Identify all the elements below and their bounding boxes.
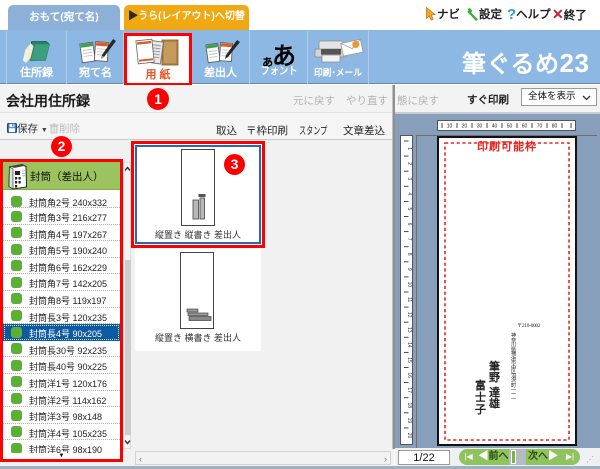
- svg-text:10: 10: [406, 282, 412, 288]
- svg-text:70: 70: [537, 124, 543, 130]
- svg-text:3: 3: [406, 177, 412, 180]
- svg-text:18: 18: [406, 403, 412, 409]
- svg-text:5: 5: [406, 208, 412, 211]
- svg-text:6: 6: [406, 223, 412, 226]
- svg-text:15: 15: [406, 357, 412, 363]
- svg-text:1: 1: [406, 147, 412, 150]
- svg-text:17: 17: [406, 387, 412, 393]
- svg-text:19: 19: [406, 418, 412, 424]
- svg-text:8: 8: [406, 253, 412, 256]
- svg-text:60: 60: [522, 124, 528, 130]
- svg-text:13: 13: [406, 327, 412, 333]
- svg-text:20: 20: [406, 433, 412, 439]
- svg-text:7: 7: [406, 238, 412, 241]
- svg-text:12: 12: [406, 312, 412, 318]
- svg-text:40: 40: [492, 124, 498, 130]
- svg-text:11: 11: [406, 297, 412, 302]
- svg-text:16: 16: [406, 372, 412, 378]
- svg-text:80: 80: [552, 124, 558, 130]
- svg-text:50: 50: [507, 124, 513, 130]
- svg-text:2: 2: [406, 162, 412, 165]
- svg-text:14: 14: [406, 342, 412, 348]
- svg-text:20: 20: [462, 124, 468, 130]
- svg-text:9: 9: [406, 268, 412, 271]
- svg-text:4: 4: [406, 192, 412, 195]
- svg-text:10: 10: [447, 124, 453, 130]
- svg-text:30: 30: [477, 124, 483, 130]
